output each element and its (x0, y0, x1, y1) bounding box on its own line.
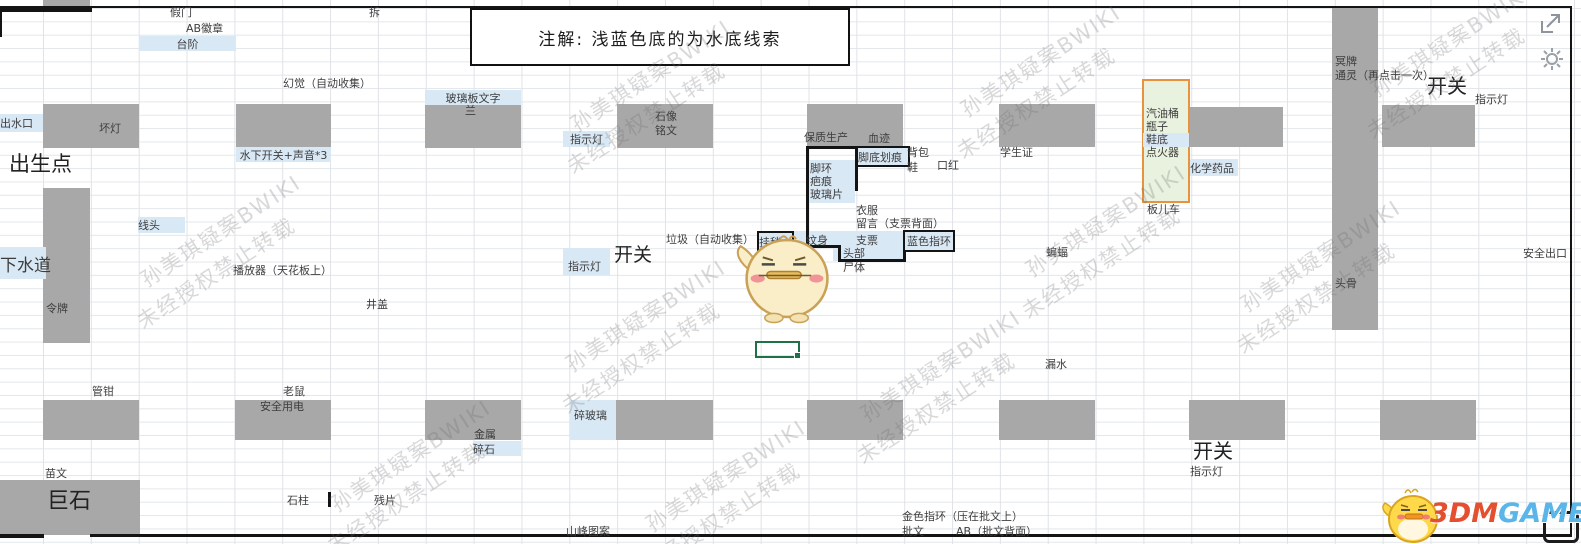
water-clue-cell: 蓝色指环 (903, 230, 955, 252)
clue-label: 山峰图案 (566, 526, 610, 538)
clue-label: 苗文 (45, 468, 67, 480)
clue-label: 头骨 (1335, 278, 1357, 290)
clue-label: 指示灯 (568, 261, 601, 273)
boulder-label: 巨石 (47, 490, 91, 513)
switch-label-top-right: 开关 (1427, 76, 1467, 97)
wall-block (43, 400, 139, 440)
water-clue-cell: 出水口 (0, 114, 43, 132)
clue-label: 点火器 (1146, 147, 1179, 159)
clue-label: 石柱 (287, 495, 309, 507)
wall-block (616, 400, 713, 440)
clue-label: 通灵（再点击一次） (1335, 70, 1434, 82)
wall-line (90, 534, 1572, 537)
wall-line (1570, 6, 1572, 537)
switch-label-center: 开关 (614, 246, 652, 266)
clue-label: 鞋 (907, 162, 918, 174)
watermark-text: 孙美琪疑案BWIKI未经授权禁止转载 (134, 167, 325, 323)
clue-label: 安全用电 (260, 401, 304, 413)
clue-label: 井盖 (366, 299, 388, 311)
watermark-text: 孙美琪疑案BWIKI未经授权禁止转载 (559, 252, 750, 408)
wall-block (1189, 400, 1285, 440)
clue-label: 学生证 (1000, 147, 1033, 159)
clue-label: 支票 (856, 235, 878, 247)
clue-label: 指示灯 (1475, 94, 1508, 106)
clue-label: 血迹 (868, 133, 890, 145)
wall-block (236, 104, 331, 148)
clue-label: 兰 (465, 105, 476, 117)
wall-line (328, 492, 331, 507)
chick-mascot (728, 228, 840, 328)
clue-label: 玻璃片 (810, 189, 843, 201)
wall-block (425, 400, 521, 440)
water-clue-cell: 线头 (138, 217, 185, 233)
clue-label: 幻觉（自动收集） (283, 78, 371, 90)
clue-label: 漏水 (1045, 359, 1067, 371)
wall-block (1382, 105, 1475, 147)
logo-game: GAME (1498, 498, 1581, 529)
clue-label: 瓶子 (1146, 121, 1168, 133)
clue-label: 留言（支票背面） (856, 218, 944, 230)
wall-line (0, 8, 92, 12)
clue-label: 汽油桶 (1146, 108, 1179, 120)
clue-label: AB徽章 (186, 23, 223, 35)
legend-box: 注解: 浅蓝色底的为水底线索 (470, 8, 850, 66)
clue-label: 拆 (369, 7, 380, 19)
wall-block (43, 104, 139, 148)
clue-label: 金属 (474, 429, 496, 441)
wall-line (0, 534, 44, 538)
wall-block (1190, 107, 1283, 147)
clue-label: 铭文 (655, 125, 677, 137)
spreadsheet-map-canvas: 注解: 浅蓝色底的为水底线索 (0, 0, 1581, 544)
logo-3dm: 3DM (1430, 498, 1498, 529)
wall-line (0, 6, 2, 37)
wall-block (999, 400, 1095, 440)
clue-label: 石像 (655, 111, 677, 123)
clue-label: 指示灯 (1190, 466, 1223, 478)
site-logo: 3DMGAME (1430, 498, 1581, 529)
clue-label: 碎玻璃 (574, 410, 607, 422)
selected-cell[interactable] (755, 341, 800, 358)
clue-label: 冥牌 (1335, 56, 1357, 68)
clue-label: 尸体 (843, 262, 865, 274)
water-clue-cell: 台阶 (139, 36, 236, 51)
clue-label: 假门 (170, 7, 192, 19)
clue-label: 衣服 (856, 205, 878, 217)
clue-label: 鞋底 (1146, 134, 1168, 146)
wall-block (807, 400, 903, 440)
clue-label: 播放器（天花板上） (233, 265, 332, 277)
wall-block (1380, 400, 1476, 440)
water-clue-cell: 下水道 (0, 247, 46, 279)
spawn-point-label: 出生点 (9, 153, 72, 175)
clue-label: 背包 (907, 147, 929, 159)
clue-label: 疤痕 (810, 176, 832, 188)
water-clue-cell: 脚底划痕 (856, 146, 910, 167)
wall-block (999, 104, 1095, 147)
clue-label: 口红 (937, 160, 959, 172)
water-clue-cell: 水下开关+声音*3 (236, 147, 331, 162)
clue-label: 保质生产 (804, 132, 848, 144)
switch-label-bottom-right: 开关 (1193, 441, 1233, 462)
water-clue-cell: 化学药品 (1190, 159, 1238, 176)
water-clue-cell: 玻璃板文字 (425, 90, 521, 105)
clue-label: AB（批文背面） (956, 526, 1037, 538)
clue-label: 坏灯 (99, 123, 121, 135)
selection-handle[interactable] (794, 352, 801, 359)
clue-label: 蝙蝠 (1046, 247, 1068, 259)
water-clue-cell: 碎石 (473, 441, 521, 456)
clue-label: 残片 (374, 495, 396, 507)
clue-label: 安全出口 (1523, 248, 1567, 260)
clue-label: 管钳 (92, 386, 114, 398)
clue-label: 板儿车 (1147, 204, 1180, 216)
clue-label: 批文 (902, 526, 924, 538)
expand-icon[interactable] (1538, 10, 1564, 40)
watermark-text: 孙美琪疑案BWIKI未经授权禁止转载 (1234, 192, 1425, 348)
clue-label: 脚环 (810, 163, 832, 175)
gear-icon[interactable] (1539, 46, 1565, 76)
clue-label: 金色指环（压在批文上） (902, 511, 1023, 523)
water-clue-cell: 指示灯 (563, 131, 610, 147)
legend-text: 注解: 浅蓝色底的为水底线索 (538, 25, 781, 50)
clue-label: 头部 (843, 248, 865, 260)
clue-label: 老鼠 (283, 386, 305, 398)
clue-label: 令牌 (46, 303, 68, 315)
